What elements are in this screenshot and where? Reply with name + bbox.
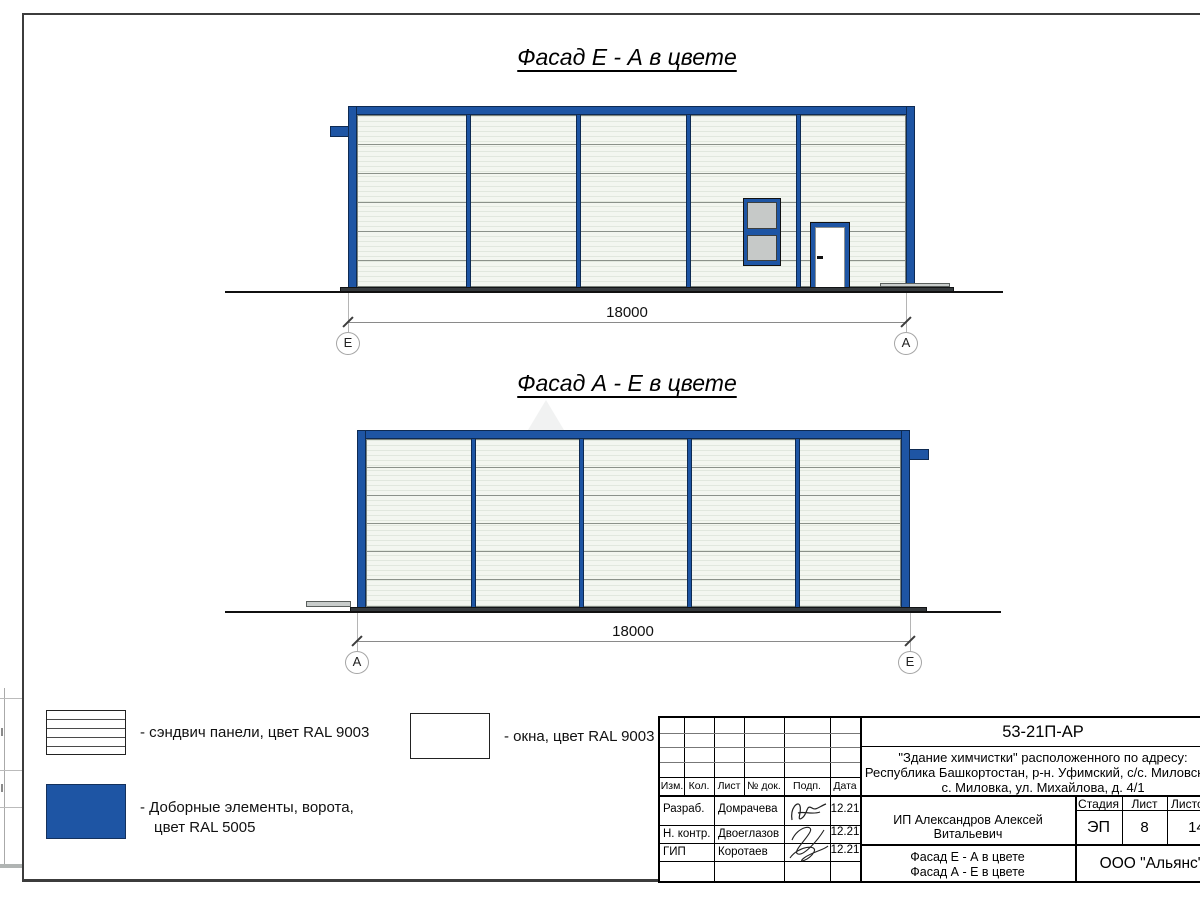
tb-date-razrab: 12.21 bbox=[830, 803, 860, 815]
facade-ae-mullion bbox=[687, 439, 692, 607]
title-block: Изм. Кол. Лист № док. Подп. Дата Разраб.… bbox=[658, 716, 1200, 883]
tb-sheet-value: 8 bbox=[1122, 819, 1167, 836]
tb-address-line3: с. Миловка, ул. Михайлова, д. 4/1 bbox=[860, 780, 1200, 795]
facade-ae-title: Фасад А - Е в цвете bbox=[340, 370, 914, 397]
facade-ea-mullion bbox=[466, 115, 471, 287]
tb-col-doc: № док. bbox=[744, 780, 784, 792]
facade-ae-gutter-stub bbox=[909, 449, 929, 460]
stamp-line bbox=[0, 698, 22, 699]
facade-ea-mullion bbox=[686, 115, 691, 287]
facade-ea-roof-beam bbox=[348, 106, 915, 115]
tb-name-gip: Коротаев bbox=[718, 846, 768, 858]
tb-client: ИП Александров Алексей Витальевич bbox=[862, 813, 1074, 841]
tb-role-razrab: Разраб. bbox=[663, 803, 704, 815]
facade-ae-mullion bbox=[579, 439, 584, 607]
facade-ea-title: Фасад Е - А в цвете bbox=[340, 44, 914, 71]
tb-address-line1: "Здание химчистки" расположенного по адр… bbox=[860, 750, 1200, 765]
tb-doc-code: 53-21П-АР bbox=[860, 723, 1200, 742]
grid-marker-e: Е bbox=[336, 332, 360, 355]
tb-sheets-value: 14 bbox=[1167, 819, 1200, 836]
sheet-border-left bbox=[22, 13, 24, 881]
tb-grid-line bbox=[714, 718, 715, 881]
tb-col-kol: Кол. bbox=[684, 780, 714, 792]
legend-label-extras-line1: - Доборные элементы, ворота, bbox=[140, 799, 354, 816]
facade-ea-mullion bbox=[576, 115, 581, 287]
grid-marker-a: А bbox=[345, 651, 369, 674]
facade-ae-ground-line bbox=[225, 611, 1001, 613]
legend-swatch-extras bbox=[46, 784, 126, 839]
facade-ea-ground-line bbox=[225, 291, 1003, 293]
stamp-line bbox=[0, 770, 22, 771]
facade-ae-column-right bbox=[901, 430, 910, 608]
facade-ae-mullion bbox=[471, 439, 476, 607]
tb-stage-label: Стадия bbox=[1075, 797, 1122, 811]
door-handle bbox=[817, 256, 823, 259]
left-margin-stamp bbox=[0, 688, 22, 868]
facade-ae-wall-panels bbox=[366, 439, 901, 607]
tb-stage-value: ЭП bbox=[1075, 819, 1122, 837]
stamp-mark bbox=[0, 864, 22, 868]
facade-ea-window bbox=[743, 198, 781, 266]
dim-extension-line bbox=[906, 293, 907, 332]
facade-ae-roof-beam bbox=[357, 430, 910, 439]
stamp-mark bbox=[1, 784, 3, 792]
tb-drawing-title-line2: Фасад А - Е в цвете bbox=[860, 865, 1075, 879]
tb-company: ООО "Альянс" bbox=[1077, 855, 1200, 873]
tb-name-razrab: Домрачева bbox=[718, 803, 778, 815]
dim-line bbox=[348, 322, 906, 323]
tb-grid-line bbox=[860, 746, 1200, 747]
legend-label-extras-line2: цвет RAL 5005 bbox=[154, 819, 255, 836]
legend-label-windows: - окна, цвет RAL 9003 bbox=[504, 728, 654, 745]
tb-grid-line bbox=[860, 844, 1200, 846]
dim-extension-line bbox=[348, 293, 349, 332]
tb-grid-line bbox=[660, 777, 860, 778]
facade-ae-ramp-left bbox=[306, 601, 351, 607]
facade-ea-column-left bbox=[348, 106, 357, 290]
facade-ae-mullion bbox=[795, 439, 800, 607]
tb-grid-line bbox=[660, 733, 860, 734]
tb-date-gip: 12.21 bbox=[830, 844, 860, 856]
legend-label-sandwich-panels: - сэндвич панели, цвет RAL 9003 bbox=[140, 724, 369, 741]
facade-ea-column-right bbox=[906, 106, 915, 290]
facade-ea-dim-label: 18000 bbox=[500, 304, 754, 321]
facade-ea-gutter-stub bbox=[330, 126, 350, 137]
tb-address-line2: Республика Башкортостан, р-н. Уфимский, … bbox=[860, 765, 1200, 780]
tb-date-nkontr: 12.21 bbox=[830, 826, 860, 838]
window-pane-bottom bbox=[747, 235, 777, 261]
drawing-page: { "facade_top": { "title": "Фасад Е - А … bbox=[0, 0, 1200, 900]
dim-extension-line bbox=[357, 613, 358, 652]
facade-ea-door bbox=[810, 222, 850, 290]
legend-swatch-sandwich-panels bbox=[46, 710, 126, 755]
grid-marker-e: Е bbox=[898, 651, 922, 674]
tb-grid-line bbox=[660, 747, 860, 748]
tb-sheets-label: Листов bbox=[1171, 797, 1200, 811]
tb-role-nkontr: Н. контр. bbox=[663, 828, 710, 840]
signature-nkontr-gip bbox=[784, 822, 832, 866]
tb-col-list: Лист bbox=[714, 780, 744, 792]
stamp-line bbox=[4, 688, 5, 866]
tb-col-podp: Подп. bbox=[784, 780, 830, 792]
legend-swatch-windows bbox=[410, 713, 490, 759]
tb-col-izm: Изм. bbox=[660, 780, 684, 792]
stamp-mark bbox=[1, 728, 3, 736]
facade-ae-dim-label: 18000 bbox=[506, 623, 760, 640]
facade-ae-column-left bbox=[357, 430, 366, 608]
tb-name-nkontr: Двоеглазов bbox=[718, 828, 779, 840]
tb-col-data: Дата bbox=[830, 780, 860, 792]
dim-line bbox=[357, 641, 910, 642]
facade-ea-mullion bbox=[796, 115, 801, 287]
tb-grid-line bbox=[660, 762, 860, 763]
tb-role-gip: ГИП bbox=[663, 846, 686, 858]
dim-extension-line bbox=[910, 613, 911, 652]
tb-drawing-title-line1: Фасад Е - А в цвете bbox=[860, 850, 1075, 864]
tb-sheet-label: Лист bbox=[1122, 797, 1167, 811]
grid-marker-a: А bbox=[894, 332, 918, 355]
sheet-border-top bbox=[22, 13, 1200, 15]
stamp-line bbox=[0, 807, 22, 808]
window-pane-top bbox=[747, 202, 777, 229]
